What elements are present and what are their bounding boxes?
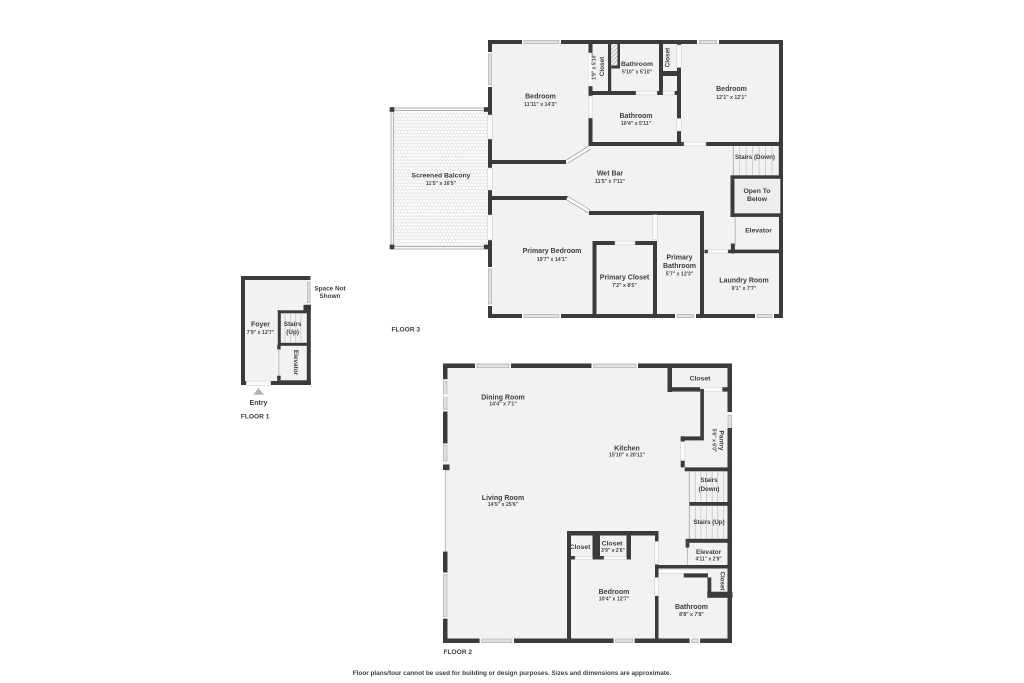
svg-text:FLOOR 1: FLOOR 1 [241,414,270,421]
svg-text:8'8" x 7'8": 8'8" x 7'8" [679,612,704,618]
svg-text:5'6" x 6'0": 5'6" x 6'0" [710,429,716,453]
svg-text:Kitchen: Kitchen [614,446,640,453]
svg-text:Primary Closet: Primary Closet [600,275,650,282]
svg-text:Entry: Entry [250,400,268,407]
svg-text:Closet: Closet [665,47,672,67]
svg-text:Space Not: Space Not [314,285,346,292]
svg-text:11'11" x 14'3": 11'11" x 14'3" [524,102,557,108]
svg-text:9'1" x 7'7": 9'1" x 7'7" [732,286,757,292]
svg-text:Pantry: Pantry [717,431,724,451]
svg-text:10'4" x 5'11": 10'4" x 5'11" [621,121,652,127]
svg-text:Stairs: Stairs [700,477,718,484]
svg-text:Primary: Primary [666,255,692,262]
svg-text:Dining Room: Dining Room [481,395,525,402]
svg-text:Primary Bedroom: Primary Bedroom [523,248,582,255]
svg-text:Stairs (Down): Stairs (Down) [735,154,775,161]
svg-text:Bedroom: Bedroom [599,589,630,596]
svg-text:14'5" x 25'6": 14'5" x 25'6" [488,502,519,508]
svg-text:Bathroom: Bathroom [619,113,652,120]
svg-text:Bathroom: Bathroom [621,61,653,68]
svg-text:1'9" x 5'10": 1'9" x 5'10" [591,53,597,80]
svg-text:5'10" x 5'10": 5'10" x 5'10" [622,69,652,75]
svg-text:Screened Balcony: Screened Balcony [412,172,471,179]
svg-text:Laundry Room: Laundry Room [719,278,768,285]
svg-text:Bathroom: Bathroom [675,604,708,611]
svg-text:FLOOR 2: FLOOR 2 [444,649,473,656]
svg-text:Open To: Open To [743,188,770,195]
svg-text:(Down): (Down) [699,486,720,493]
svg-text:7'2" x 8'5": 7'2" x 8'5" [612,283,637,289]
svg-text:10'4" x 12'7": 10'4" x 12'7" [599,597,630,603]
svg-text:Foyer: Foyer [251,322,270,329]
svg-text:7'9" x 12'7": 7'9" x 12'7" [247,330,275,336]
svg-text:Elevator: Elevator [696,549,722,556]
svg-text:11'5" x 7'11": 11'5" x 7'11" [595,179,625,185]
svg-text:Closet: Closet [570,544,592,551]
svg-text:12'1" x 12'1": 12'1" x 12'1" [716,95,747,101]
svg-text:Bedroom: Bedroom [525,93,556,100]
svg-text:Below: Below [747,196,768,203]
svg-text:Bathroom: Bathroom [663,263,696,270]
svg-text:Elevator: Elevator [745,228,772,235]
svg-text:Closet: Closet [599,56,606,76]
svg-text:11'5" x 16'5": 11'5" x 16'5" [426,181,457,187]
svg-text:Wet Bar: Wet Bar [597,171,624,178]
svg-text:Stairs (Up): Stairs (Up) [693,519,724,526]
svg-text:14'4" x 7'1": 14'4" x 7'1" [489,402,517,408]
svg-text:Shown: Shown [320,293,341,300]
svg-text:Elevator: Elevator [292,350,299,376]
svg-text:Floor plans/tour cannot be use: Floor plans/tour cannot be used for buil… [353,670,672,677]
svg-text:(Up): (Up) [286,329,299,336]
svg-text:4'11" x 2'9": 4'11" x 2'9" [695,557,722,563]
svg-text:FLOOR 3: FLOOR 3 [392,327,421,334]
svg-text:Bedroom: Bedroom [716,86,747,93]
svg-text:Closet: Closet [719,572,726,591]
svg-text:Stairs: Stairs [284,321,302,328]
svg-text:Closet: Closet [602,541,624,548]
svg-text:Closet: Closet [690,376,712,383]
svg-text:19'7" x 14'1": 19'7" x 14'1" [537,257,568,263]
svg-text:5'7" x 12'3": 5'7" x 12'3" [666,272,694,278]
svg-text:15'10" x 20'11": 15'10" x 20'11" [609,453,645,459]
svg-text:3'9" x 2'6": 3'9" x 2'6" [601,548,625,554]
